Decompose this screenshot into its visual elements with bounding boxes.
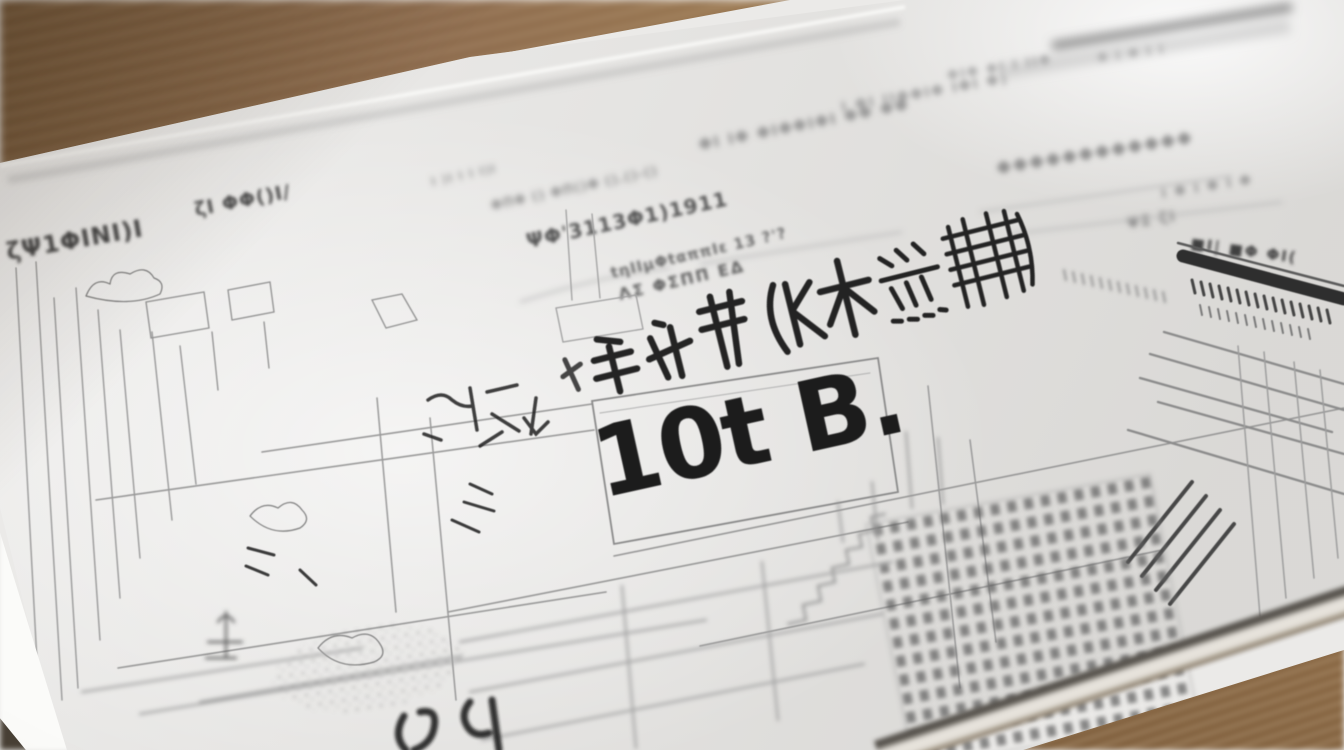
ink-glyph bbox=[939, 205, 1039, 310]
ink-glyph bbox=[559, 356, 586, 392]
ink-glyph bbox=[398, 711, 434, 750]
bottom-cut-ink-glyphs bbox=[398, 700, 499, 750]
ink-scribble-cluster bbox=[424, 385, 548, 446]
right-vertical-lines bbox=[1238, 346, 1338, 616]
ink-glyph bbox=[694, 290, 756, 371]
ink-glyph bbox=[464, 700, 499, 750]
table-header-bar bbox=[1183, 256, 1344, 299]
ink-glyph bbox=[641, 316, 698, 383]
pseudo-text-row: ζΨ1ΦΙΝΙ)Ι bbox=[4, 214, 145, 266]
table-lower-lines bbox=[1128, 332, 1344, 494]
pseudo-text-row: ΦΦΦΦΦΦΦΦΦΦΦΦ bbox=[996, 128, 1196, 178]
tree-scribbles bbox=[86, 270, 383, 665]
sketch-artwork: ΦΙ ΙΦ ΦΙΦΦΙΦΙ ΦΦ ΦΦ Ι ΦΙ ΙΙΦΦΙΦ ΙΦΙ Φ) Φ… bbox=[0, 0, 1344, 750]
left-skyline-verticals bbox=[16, 262, 196, 718]
pencil-houses bbox=[146, 282, 417, 390]
ink-glyph bbox=[814, 255, 881, 341]
ink-glyph bbox=[764, 276, 827, 353]
dark-accent-strokes bbox=[246, 484, 494, 585]
pseudo-text-row: Ι Φ Ι Φ Ι Φ bbox=[1160, 173, 1254, 202]
mid-print-rows: ΨΦ'3113Φ1)1911 tηΙΙμΦtαππΙε 13 ?'? ΛΣ ΦΣ… bbox=[4, 181, 1299, 304]
ink-glyph bbox=[874, 240, 948, 326]
paper-top-edge-highlight bbox=[0, 7, 905, 180]
pseudo-text-row: Ι )Ι Ι Ι Ι)Ι bbox=[430, 161, 498, 189]
stipple-foliage bbox=[267, 611, 470, 724]
stair-outline bbox=[788, 514, 885, 624]
ink-glyph bbox=[587, 332, 641, 396]
photo-scene: ΦΙ ΙΦ ΦΙΦΦΙΦΙ ΦΦ ΦΦ Ι ΦΙ ΙΙΦΦΙΦ ΙΦΙ Φ) Φ… bbox=[0, 0, 1344, 750]
small-tick-rows-left-of-bar bbox=[1064, 270, 1165, 302]
pseudo-text-row: ζΙ ΦΦ()Ι/ bbox=[193, 181, 293, 221]
